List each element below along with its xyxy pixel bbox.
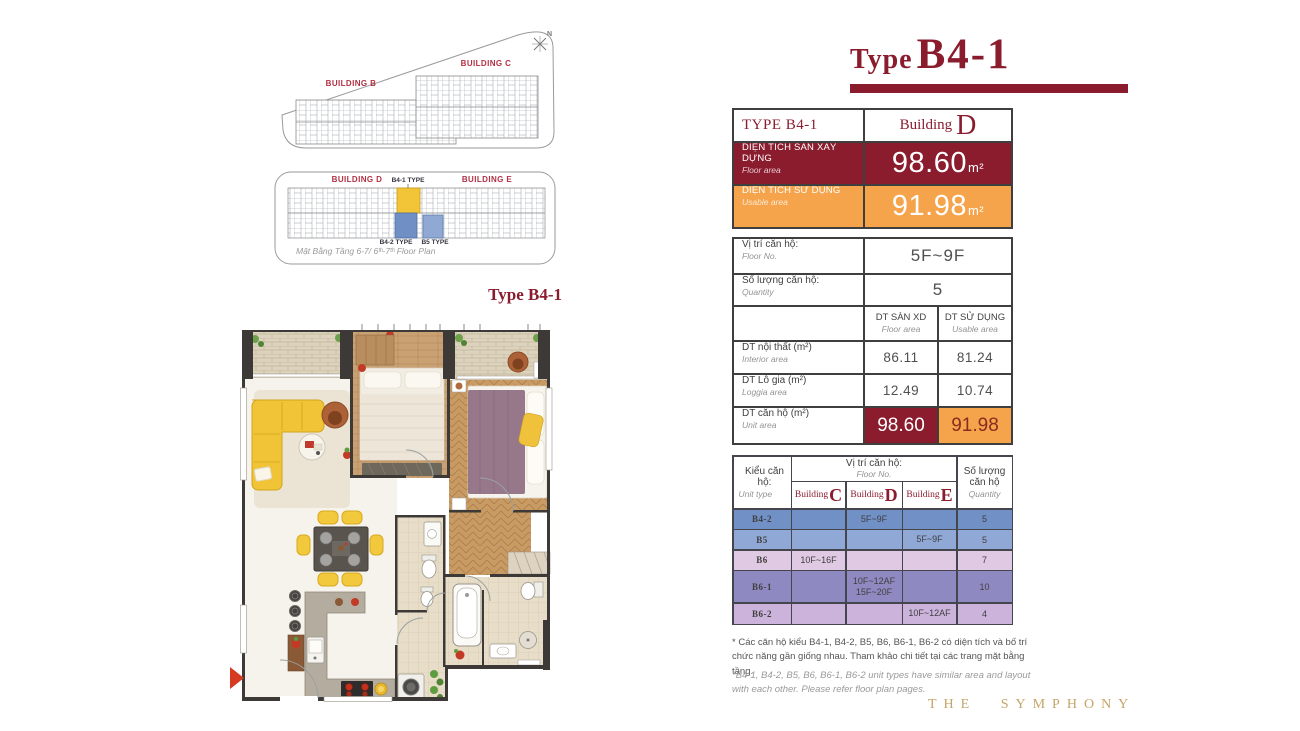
- balcony-right-window: [457, 376, 546, 379]
- balcony-left: [245, 332, 347, 378]
- row-b42-c: [792, 510, 845, 529]
- row-b42-type: B4-2: [734, 510, 791, 529]
- interior-usable-value: 81.24: [939, 342, 1011, 373]
- footnote-english: *B4-1, B4-2, B5, B6, B6-1, B6-2 unit typ…: [732, 669, 1036, 698]
- unit-b5-highlight: [423, 215, 443, 238]
- siteplan-buildings-bc: BUILDING B BUILDING C N: [266, 20, 566, 162]
- loggia-floor-value: 12.49: [865, 375, 937, 406]
- row-b61-type: B6-1: [734, 571, 791, 602]
- unit-floor-value: 98.60: [865, 408, 937, 443]
- unit-b42-highlight: [395, 213, 417, 238]
- loggia-usable-value: 10.74: [939, 375, 1011, 406]
- coffee-table: [299, 434, 325, 460]
- row-b5-d: [847, 530, 902, 549]
- unit-type-column-header: Kiểu căn hộ: Unit type: [734, 457, 791, 509]
- row-b6-qty: 7: [958, 551, 1012, 570]
- toilet: [521, 583, 535, 600]
- summary-type-header: TYPE B4-1: [734, 110, 863, 141]
- floor-plan-caption: Mặt Bằng Tầng 6-7/ 6ᵗʰ-7ᵗʰ Floor Plan: [296, 246, 435, 256]
- title-underline: [850, 84, 1128, 93]
- loggia-area-label: DT Lô gia (m²) Loggia area: [734, 375, 863, 406]
- wardrobe-right: [508, 552, 550, 574]
- row-b5-type: B5: [734, 530, 791, 549]
- balcony-left-window: [247, 374, 345, 377]
- quantity-column-header: Số lượng căn hộ Quantity: [958, 457, 1012, 509]
- col-floor-header: DT SÀN XD Floor area: [865, 307, 937, 340]
- row-b62-qty: 4: [958, 604, 1012, 624]
- row-b6-d: [847, 551, 902, 570]
- compass-icon: [532, 36, 548, 52]
- floorplan-drawing: [228, 322, 562, 704]
- row-b42-d: 5F~9F: [847, 510, 902, 529]
- building-d-header: BuildingD: [847, 482, 902, 508]
- row-b61-c: [792, 571, 845, 602]
- bed-right: [468, 386, 547, 498]
- row-b62-c: [792, 604, 845, 624]
- compass-n-label: N: [547, 31, 552, 38]
- quantity-label: Số lượng căn hộ: Quantity: [734, 275, 863, 305]
- row-b5-e: 5F~9F: [903, 530, 956, 549]
- dimension-ticks: [362, 324, 540, 330]
- quantity-value: 5: [865, 275, 1011, 305]
- unit-b41-highlight: [397, 188, 420, 213]
- page-title-name: B4-1: [917, 31, 1011, 78]
- page-title: Type B4-1: [850, 30, 1011, 79]
- unit-area-label: DT căn hộ (m²) Unit area: [734, 408, 863, 443]
- b41-type-label: B4-1 TYPE: [378, 177, 438, 184]
- row-b61-e: [903, 571, 956, 602]
- armchair: [322, 402, 348, 428]
- building-e-header: BuildingE: [903, 482, 956, 508]
- row-b61-qty: 10: [958, 571, 1012, 602]
- interior-floor-value: 86.11: [865, 342, 937, 373]
- row-b5-qty: 5: [958, 530, 1012, 549]
- b5-type-label: B5 TYPE: [410, 239, 460, 246]
- row-b6-e: [903, 551, 956, 570]
- col-usable-header: DT SỬ DỤNG Usable area: [939, 307, 1011, 340]
- apartment-floorplan: [228, 322, 562, 704]
- row-b61-d: 10F~12AF 15F~20F: [847, 571, 902, 602]
- summary-table: TYPE B4-1 Building D DIỆN TÍCH SÀN XÂY D…: [732, 108, 1013, 229]
- empty-cell: [734, 307, 863, 340]
- building-letter: D: [956, 110, 976, 141]
- armchair-right: [508, 352, 528, 372]
- row-b62-e: 10F~12AF: [903, 604, 956, 624]
- interior-area-label: DT nội thất (m²) Interior area: [734, 342, 863, 373]
- building-b-label: BUILDING B: [306, 79, 396, 88]
- building-c-label: BUILDING C: [436, 59, 536, 68]
- bed-middle: [358, 364, 444, 460]
- unit-types-table: Kiểu căn hộ: Unit type Vị trí căn hộ: Fl…: [732, 455, 1013, 625]
- row-b42-e: [903, 510, 956, 529]
- floor-area-label: DIỆN TÍCH SÀN XÂY DỰNG Floor area: [734, 143, 863, 184]
- unit-usable-value: 91.98: [939, 408, 1011, 443]
- row-b6-c: 10F~16F: [792, 551, 845, 570]
- building-c-header: BuildingC: [792, 482, 845, 508]
- floorplan-type-label: Type B4-1: [440, 285, 562, 305]
- usable-area-value: 91.98m²: [865, 186, 1011, 227]
- wardrobe-middle: [356, 335, 394, 365]
- building-e-label: BUILDING E: [437, 175, 537, 184]
- entrance-arrow: [230, 667, 244, 689]
- row-b62-d: [847, 604, 902, 624]
- stove: [341, 681, 373, 698]
- siteplan-buildings-de: BUILDING D BUILDING E B4-1 TYPE B4-2 TYP…: [272, 168, 558, 268]
- position-column-header: Vị trí căn hộ: Floor No.: [792, 457, 956, 481]
- row-b6-type: B6: [734, 551, 791, 570]
- the-symphony-logo: THE SYMPHONY: [928, 697, 1158, 713]
- building-c-block: [416, 76, 538, 138]
- floor-area-value: 98.60m²: [865, 143, 1011, 184]
- building-prefix: Building: [900, 117, 953, 134]
- position-value: 5F~9F: [865, 239, 1011, 273]
- row-b62-type: B6-2: [734, 604, 791, 624]
- summary-building-header: Building D: [865, 110, 1011, 141]
- usable-area-label: DIỆN TÍCH SỬ DỤNG Usable area: [734, 186, 863, 227]
- row-b5-c: [792, 530, 845, 549]
- position-label: Vị trí căn hộ: Floor No.: [734, 239, 863, 273]
- brochure-page: BUILDING B BUILDING C N BUILDING D BUILD…: [0, 0, 1300, 731]
- row-b42-qty: 5: [958, 510, 1012, 529]
- siteplan-bc-drawing: [266, 20, 566, 162]
- page-title-prefix: Type: [850, 44, 913, 75]
- detail-table: Vị trí căn hộ: Floor No. 5F~9F Số lượng …: [732, 237, 1013, 445]
